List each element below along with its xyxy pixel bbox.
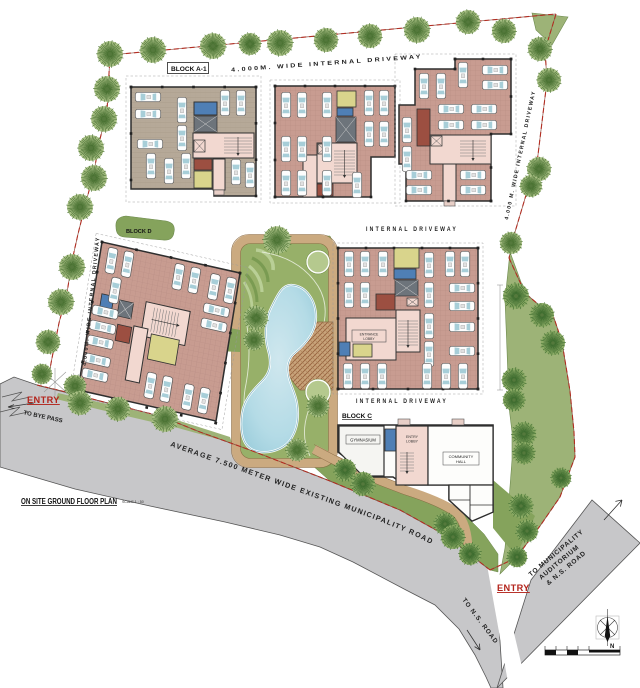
svg-text:4.000M. WIDE INTERNAL DRIVE: 4.000M. WIDE INTERNAL DRIVEWAY — [231, 54, 423, 73]
svg-text:GYMNASIUM: GYMNASIUM — [350, 437, 376, 442]
svg-text:ENTRY: ENTRY — [27, 395, 60, 405]
svg-text:INTERNAL DRIVEWAY: INTERNAL DRIVEWAY — [356, 399, 448, 405]
svg-text:INTERNAL DRIVEWAY: INTERNAL DRIVEWAY — [366, 227, 458, 233]
svg-text:SCALE 1 : 50: SCALE 1 : 50 — [122, 500, 144, 504]
svg-text:BLOCK C: BLOCK C — [342, 413, 372, 420]
svg-text:ENTRY: ENTRY — [497, 583, 530, 593]
svg-text:ON SITE GROUND FLOOR PLAN: ON SITE GROUND FLOOR PLAN — [21, 497, 117, 506]
svg-text:ENTRY: ENTRY — [406, 435, 419, 439]
svg-text:BLOCK A-1: BLOCK A-1 — [171, 66, 207, 73]
svg-text:LOBBY: LOBBY — [406, 439, 419, 443]
svg-text:BLOCK D: BLOCK D — [126, 229, 151, 235]
svg-text:LOBBY: LOBBY — [363, 337, 375, 341]
svg-text:HALL: HALL — [456, 459, 467, 464]
svg-text:N: N — [610, 644, 614, 650]
svg-text:ENTRANCE: ENTRANCE — [360, 332, 379, 336]
